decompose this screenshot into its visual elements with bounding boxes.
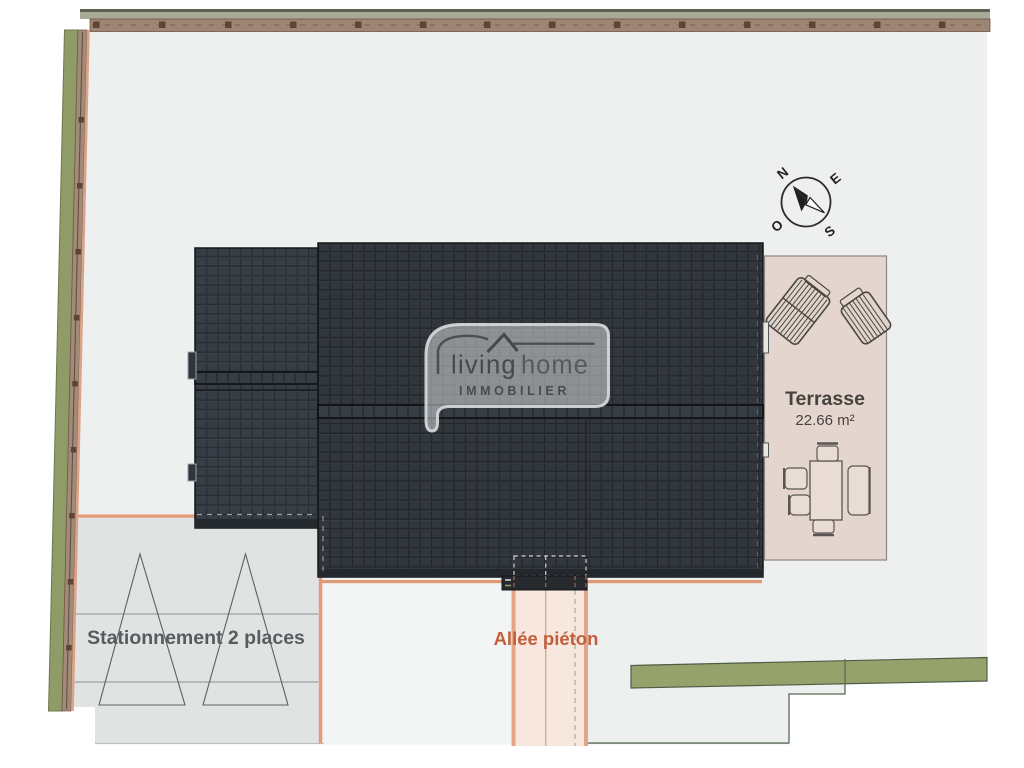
svg-text:IMMOBILIER: IMMOBILIER (459, 384, 570, 398)
svg-text:22.66 m²: 22.66 m² (795, 412, 854, 429)
svg-text:living: living (451, 352, 517, 380)
svg-text:Terrasse: Terrasse (785, 388, 865, 410)
svg-text:home: home (521, 352, 589, 380)
svg-text:Stationnement 2 places: Stationnement 2 places (87, 627, 305, 649)
svg-text:Allée piéton: Allée piéton (494, 628, 599, 649)
